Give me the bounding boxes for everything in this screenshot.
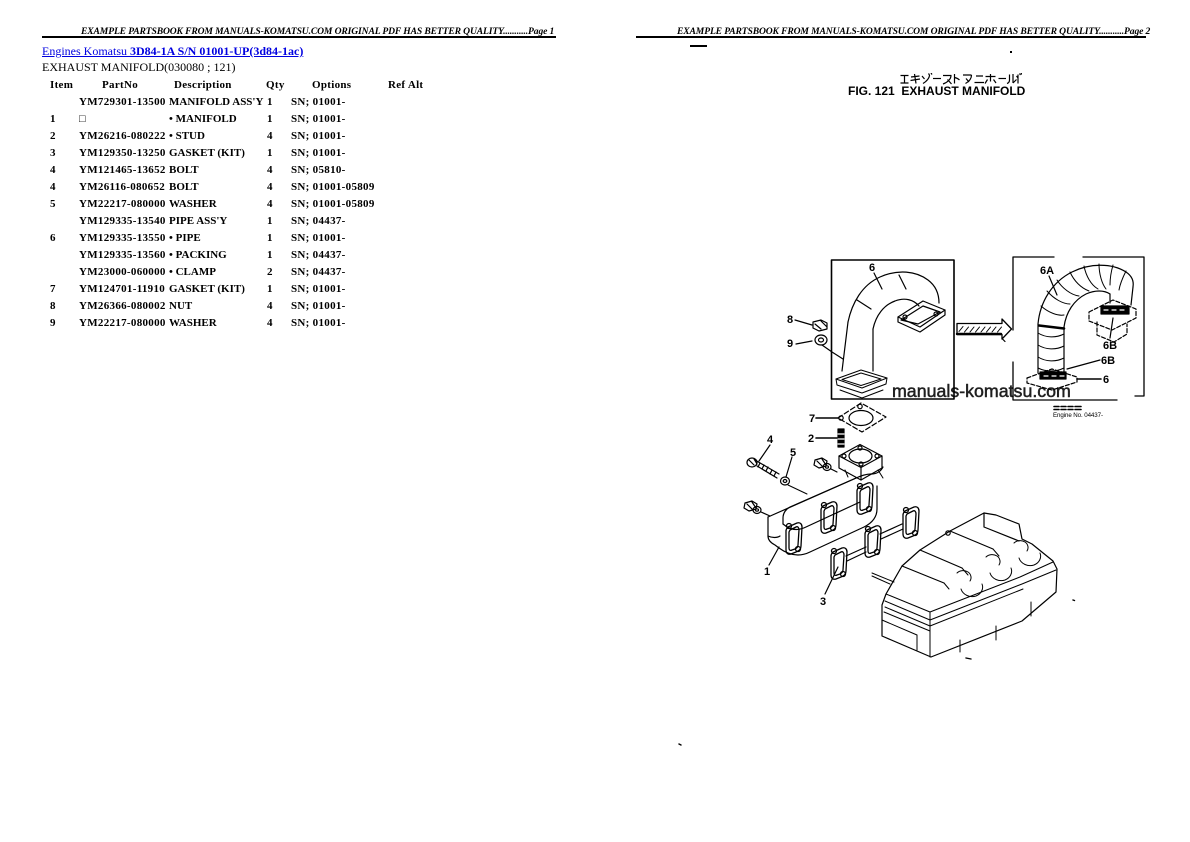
svg-text:9: 9 (787, 338, 793, 350)
svg-text:1: 1 (764, 566, 770, 578)
svg-text:6B: 6B (1103, 340, 1117, 352)
svg-text:4: 4 (767, 434, 774, 446)
svg-text:manuals-komatsu.com: manuals-komatsu.com (892, 381, 1071, 401)
svg-text:6B: 6B (1101, 355, 1115, 367)
svg-text:6: 6 (869, 262, 875, 274)
svg-text:6A: 6A (1040, 265, 1054, 277)
svg-text:7: 7 (809, 413, 815, 425)
svg-text:Engine No. 04437-: Engine No. 04437- (1053, 412, 1103, 419)
svg-text:8: 8 (787, 314, 793, 326)
svg-text:2: 2 (808, 433, 814, 445)
svg-text:3: 3 (820, 596, 826, 608)
svg-text:6: 6 (1103, 374, 1109, 386)
svg-text:5: 5 (790, 447, 796, 459)
